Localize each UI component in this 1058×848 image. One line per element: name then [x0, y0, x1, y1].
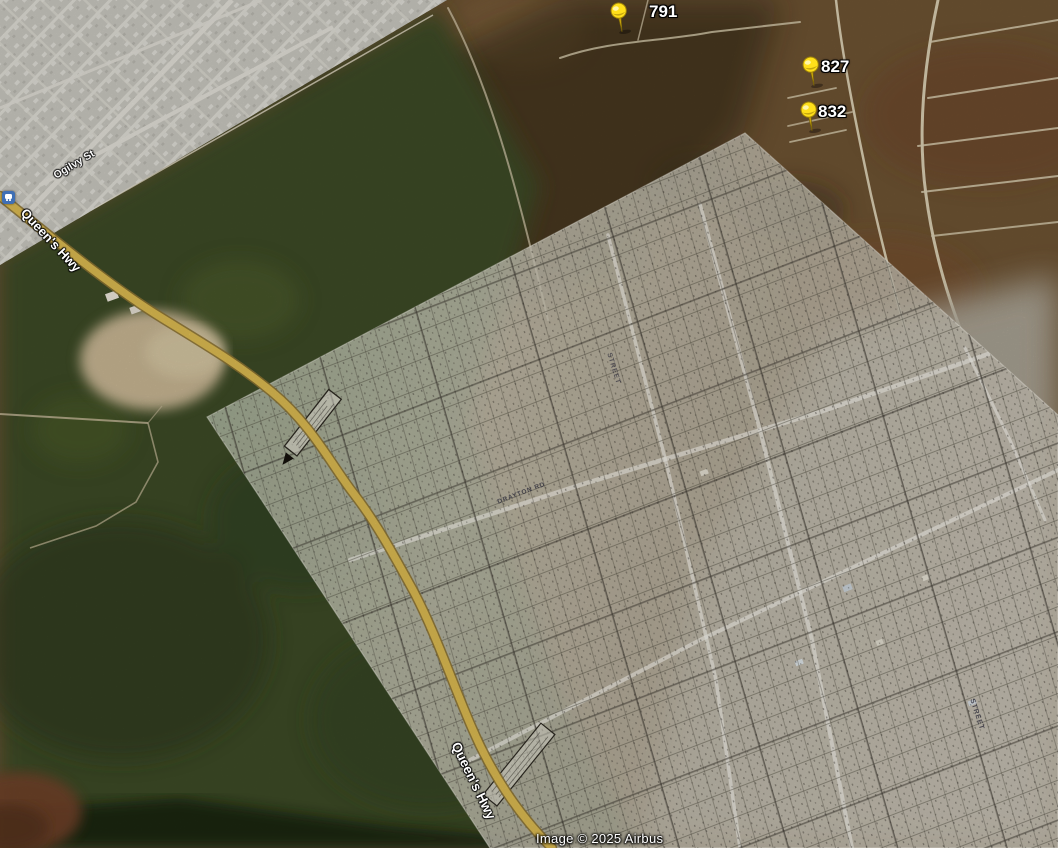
yellow-pushpin-icon: [606, 1, 634, 37]
placemark-label: 791: [649, 3, 677, 20]
google-earth-viewport[interactable]: 791 827 832 Queen's Hwy Ogilv: [0, 0, 1058, 848]
placemark-label: 832: [818, 103, 846, 120]
bus-stop-icon[interactable]: [2, 191, 15, 204]
bus-glyph: [5, 194, 12, 199]
placemark-827[interactable]: 827: [798, 55, 888, 95]
placemark-label: 827: [821, 58, 849, 75]
imagery-attribution: Image © 2025 Airbus: [536, 831, 663, 846]
placemark-832[interactable]: 832: [796, 100, 886, 140]
imagery-grain: [0, 0, 1058, 848]
satellite-map-canvas[interactable]: [0, 0, 1058, 848]
placemark-791[interactable]: 791: [606, 1, 696, 41]
